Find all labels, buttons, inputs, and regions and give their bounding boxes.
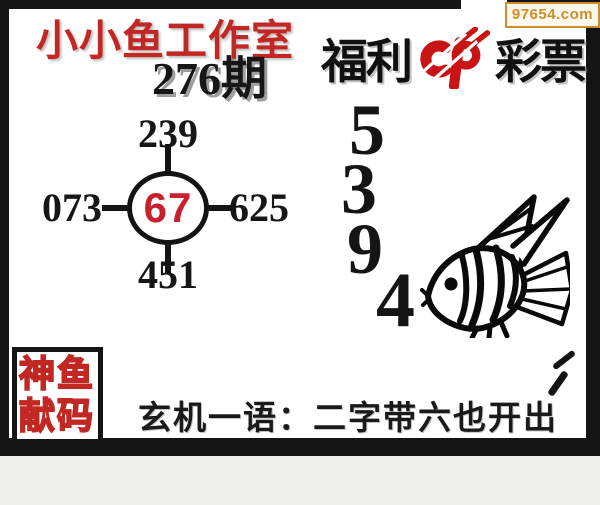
brand-prefix: 福利 — [321, 38, 411, 85]
wheel-number-right: 625 — [229, 188, 289, 228]
lottery-brand: 福利 彩票 — [321, 33, 585, 89]
frame-top-gap — [461, 0, 507, 22]
seal-stamp: 神鱼 献码 — [12, 347, 103, 444]
issue-number: 276期 — [152, 56, 267, 102]
bottom-margin — [0, 456, 600, 505]
lottery-tip-sheet: 97654.com 小小鱼工作室 276期 福利 彩票 239 073 625 … — [0, 0, 600, 505]
prediction-digit-4: 4 — [376, 261, 415, 339]
hint-label: 玄机一语： — [138, 399, 313, 436]
hint-phrase: 二字带六也开出 — [313, 399, 558, 436]
fish-icon — [420, 190, 570, 338]
wheel-connector-top — [165, 144, 171, 174]
wheel-circle: 67 — [127, 171, 209, 245]
stamp-line-2: 献码 — [19, 395, 95, 436]
wheel-connector-right — [207, 205, 234, 211]
hint-line: 玄机一语：二字带六也开出 — [138, 401, 558, 434]
wheel-number-left: 073 — [42, 188, 102, 228]
stamp-line-1: 神鱼 — [19, 353, 95, 394]
wheel-connector-left — [102, 205, 129, 211]
seal-stamp-art: 神鱼 献码 — [17, 352, 98, 439]
wheel-connector-bottom — [165, 243, 171, 273]
cp-lottery-logo-icon — [414, 27, 492, 89]
brand-suffix: 彩票 — [495, 38, 585, 85]
wheel-center-number: 67 — [144, 187, 193, 229]
site-link[interactable]: 97654.com — [505, 2, 600, 28]
